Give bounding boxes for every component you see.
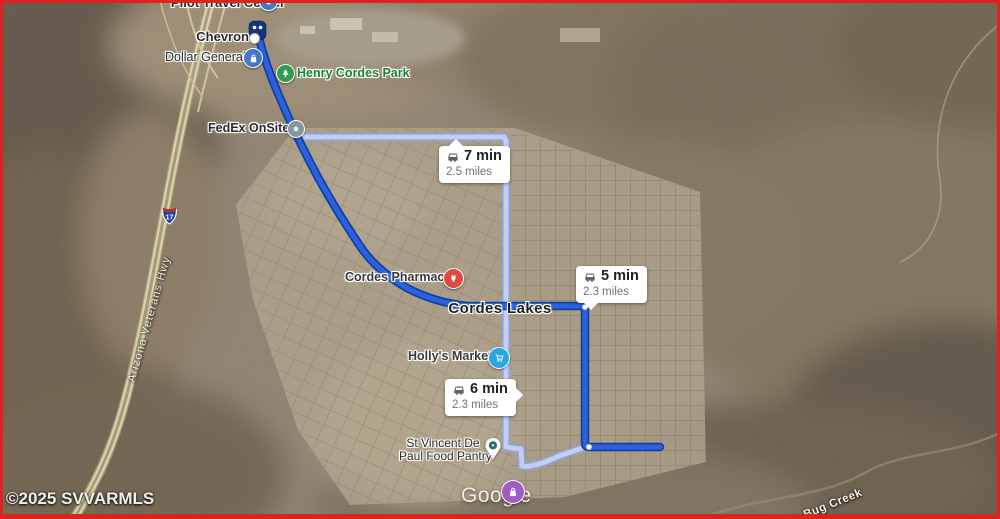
henry-cordes-park-icon[interactable] [276,64,295,83]
car-icon [583,271,597,283]
waypoint-dot [586,444,591,449]
fedex-onsite-label[interactable]: FedEx OnSite [208,121,285,135]
cordes-pharmacy-label[interactable]: Cordes Pharmacy [345,270,441,284]
dollar-general-icon[interactable] [243,48,263,68]
mls-watermark: ©2025 SVVARMLS [6,489,154,509]
food-pantry-pin-icon[interactable] [484,437,502,466]
dollar-general-label[interactable]: Dollar General [165,50,243,64]
badge-pointer-right [516,388,523,402]
cordes-pharmacy-icon[interactable] [443,268,464,289]
badge-distance: 2.5 miles [446,166,502,179]
badge-pointer-down [584,303,598,310]
badge-distance: 2.3 miles [583,286,639,299]
car-icon [452,384,466,396]
town-label-cordes-lakes[interactable]: Cordes Lakes [440,300,560,317]
industrial-area [275,8,465,68]
badge-distance: 2.3 miles [452,399,508,412]
badge-duration: 5 min [601,269,639,285]
satellite-map[interactable]: 17 Pilot Travel Center Chevron Dollar Ge… [0,0,1000,519]
route-badge-5min[interactable]: 5 min 2.3 miles [576,266,647,303]
henry-cordes-park-label[interactable]: Henry Cordes Park [297,66,410,80]
svg-text:17: 17 [166,214,174,221]
badge-pointer-up [449,139,463,146]
route-badge-7min[interactable]: 7 min 2.5 miles [439,146,510,183]
fedex-onsite-icon[interactable] [287,120,305,138]
food-pantry-label-line2: Paul Food Pantry [399,450,487,463]
interstate-17-shield: 17 [161,206,178,230]
hollys-market-icon[interactable] [488,347,510,369]
car-icon [446,151,460,163]
badge-duration: 7 min [464,149,502,165]
hollys-market-label[interactable]: Holly's Market [408,349,486,363]
food-pantry-label[interactable]: St Vincent De Paul Food Pantry [399,437,487,463]
route-badge-6min[interactable]: 6 min 2.3 miles [445,379,516,416]
chevron-label[interactable]: Chevron [193,29,249,44]
chevron-poi-dot[interactable] [249,33,260,44]
badge-duration: 6 min [470,382,508,398]
store-poi-icon[interactable] [501,480,525,504]
